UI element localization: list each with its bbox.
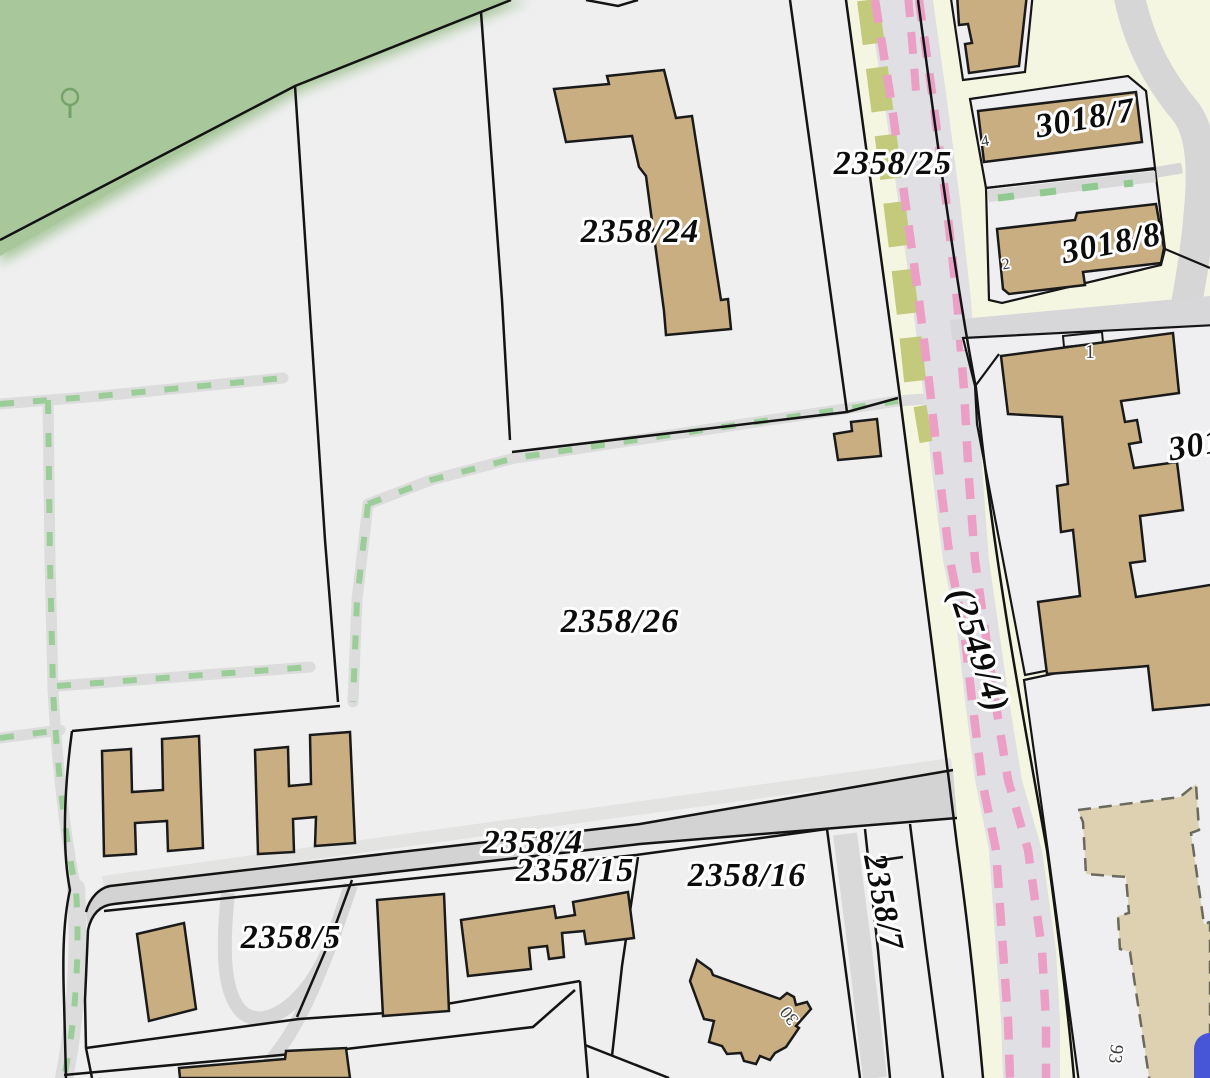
- svg-text:2358/16: 2358/16: [687, 857, 806, 894]
- svg-text:2358/26: 2358/26: [560, 603, 679, 640]
- svg-text:2358/15: 2358/15: [515, 852, 634, 889]
- svg-text:2358/5: 2358/5: [240, 919, 341, 956]
- svg-text:2358/25: 2358/25: [833, 145, 952, 182]
- svg-text:1: 1: [1085, 341, 1095, 363]
- svg-text:2358/24: 2358/24: [580, 213, 699, 250]
- svg-text:93: 93: [1104, 1043, 1127, 1064]
